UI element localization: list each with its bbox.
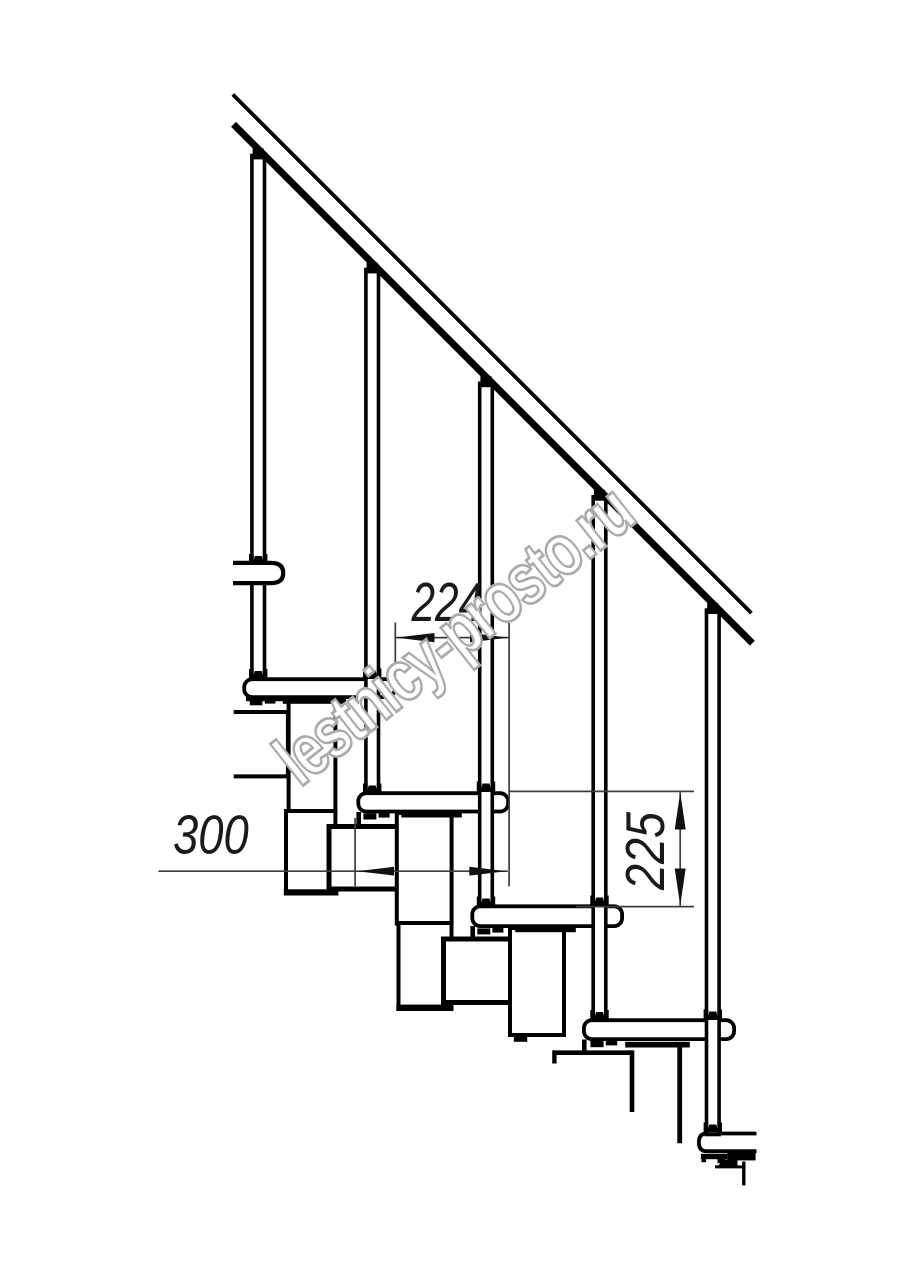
- svg-text:225: 225: [614, 811, 675, 890]
- svg-text:300: 300: [173, 803, 249, 865]
- svg-text:lestnicy-prosto.ru: lestnicy-prosto.ru: [259, 469, 648, 800]
